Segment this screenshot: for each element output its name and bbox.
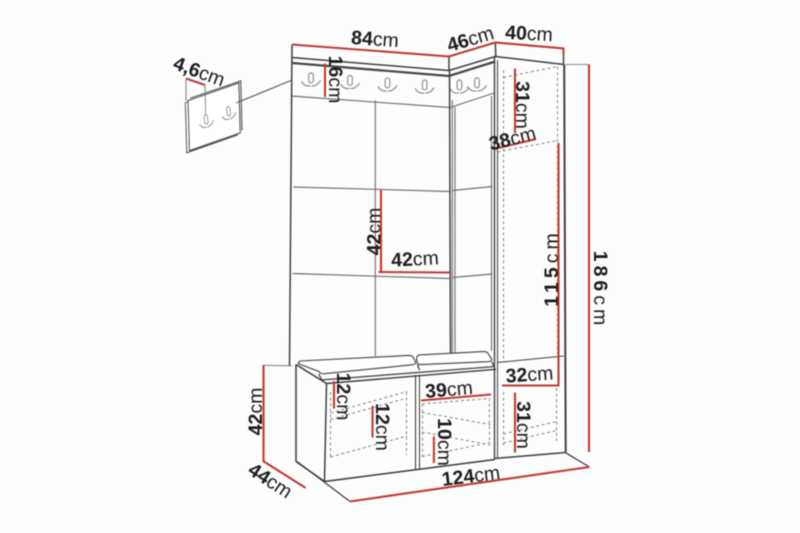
svg-text:16cm: 16cm [324, 56, 346, 104]
svg-text:42cm: 42cm [391, 247, 440, 271]
svg-text:10cm: 10cm [433, 418, 455, 466]
svg-text:12cm: 12cm [332, 373, 354, 421]
svg-text:42cm: 42cm [245, 388, 267, 436]
svg-text:39cm: 39cm [424, 377, 473, 403]
svg-text:42cm: 42cm [363, 208, 385, 256]
svg-text:32cm: 32cm [505, 362, 554, 387]
svg-text:84cm: 84cm [350, 27, 399, 52]
svg-text:31cm: 31cm [511, 81, 533, 129]
svg-text:12cm: 12cm [371, 403, 393, 451]
svg-text:40cm: 40cm [505, 22, 554, 46]
svg-text:31cm: 31cm [512, 401, 534, 449]
svg-text:186cm: 186cm [589, 251, 611, 330]
svg-text:115cm: 115cm [541, 229, 563, 306]
